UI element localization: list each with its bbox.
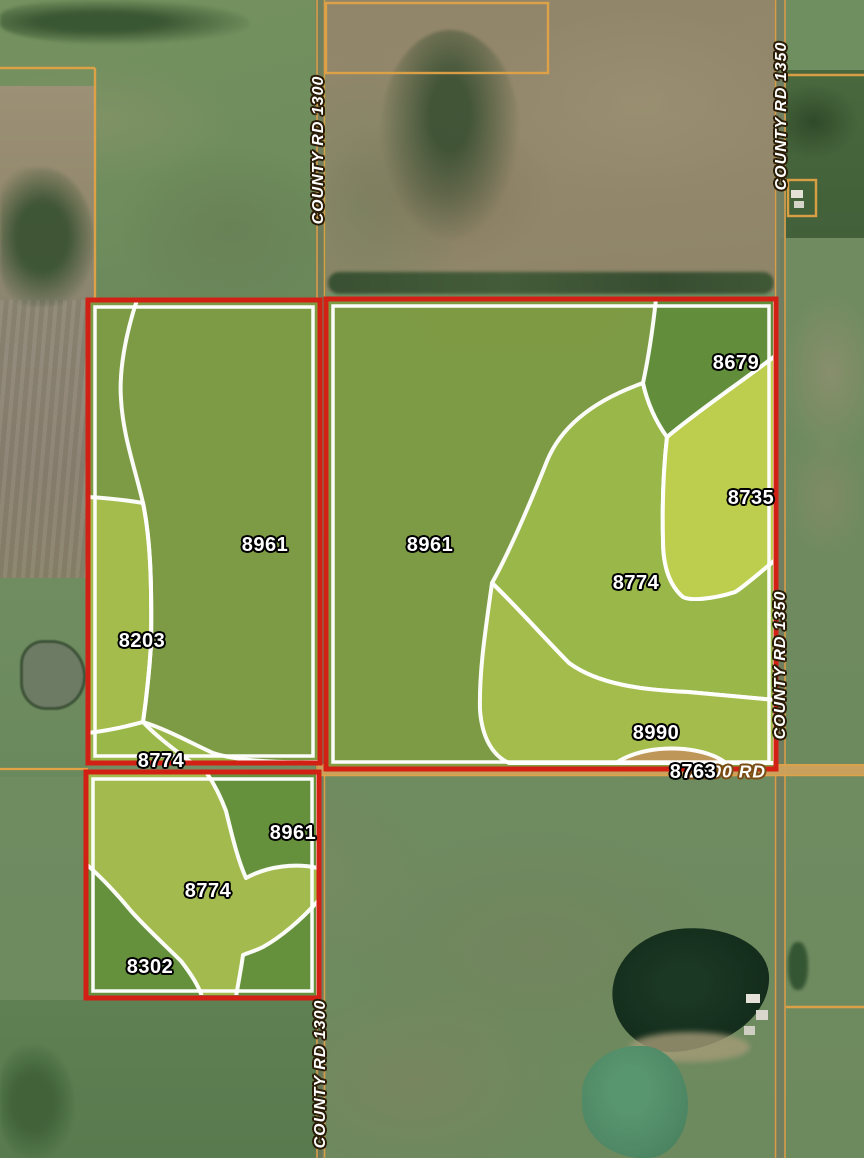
soil-label-p2-8774: 8774 bbox=[613, 573, 660, 593]
soil-labels-layer: 8961820387748961867987358774899087638961… bbox=[0, 0, 864, 1158]
soil-label-p2-8735: 8735 bbox=[728, 488, 775, 508]
soil-label-p2-8990: 8990 bbox=[633, 723, 680, 743]
soil-label-p3-8302: 8302 bbox=[127, 957, 174, 977]
soil-label-p2-8679: 8679 bbox=[713, 353, 760, 373]
soil-label-p1-8774: 8774 bbox=[138, 751, 185, 771]
soil-label-p1-8961: 8961 bbox=[242, 535, 289, 555]
soil-label-p2-8961: 8961 bbox=[407, 535, 454, 555]
soil-label-p3-8774: 8774 bbox=[185, 881, 232, 901]
soil-label-p2-8763: 8763 bbox=[670, 762, 717, 782]
satellite-map[interactable]: COUNTY RD 1300COUNTY RD 1350COUNTY RD 13… bbox=[0, 0, 864, 1158]
soil-label-p3-8961: 8961 bbox=[270, 823, 317, 843]
soil-label-p1-8203: 8203 bbox=[119, 631, 166, 651]
